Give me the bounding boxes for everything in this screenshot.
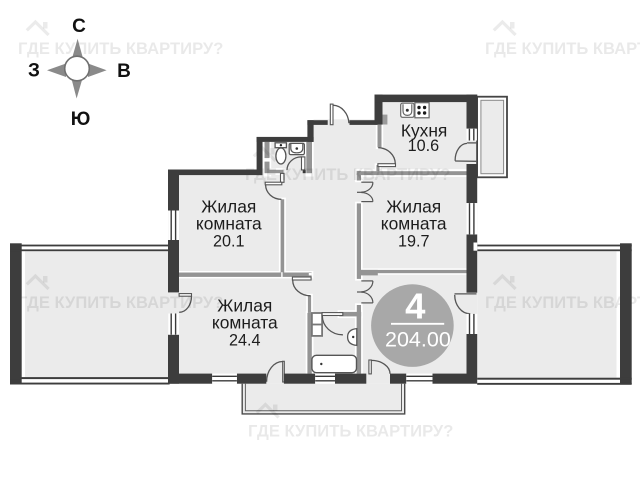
svg-text:ГДЕ КУПИТЬ КВАРТИРУ?: ГДЕ КУПИТЬ КВАРТИРУ? [485,39,640,58]
svg-text:ГДЕ КУПИТЬ КВАРТИРУ?: ГДЕ КУПИТЬ КВАРТИРУ? [485,293,640,312]
svg-text:ГДЕ КУПИТЬ КВАРТИРУ?: ГДЕ КУПИТЬ КВАРТИРУ? [248,422,453,441]
svg-text:204.00: 204.00 [385,327,451,351]
svg-text:Ю: Ю [71,109,91,130]
svg-text:10.6: 10.6 [408,137,440,155]
svg-text:комната: комната [212,312,278,332]
svg-text:24.4: 24.4 [229,331,261,349]
svg-text:4: 4 [405,286,426,327]
svg-text:комната: комната [196,213,262,233]
svg-text:ГДЕ КУПИТЬ КВАРТИРУ?: ГДЕ КУПИТЬ КВАРТИРУ? [18,39,223,58]
svg-text:ГДЕ КУПИТЬ КВАРТИРУ?: ГДЕ КУПИТЬ КВАРТИРУ? [18,293,223,312]
svg-text:20.1: 20.1 [213,233,245,251]
svg-text:З: З [28,61,40,82]
svg-text:комната: комната [381,213,447,233]
svg-text:В: В [117,61,131,82]
svg-text:ГДЕ КУПИТЬ КВАРТИРУ?: ГДЕ КУПИТЬ КВАРТИРУ? [245,165,450,184]
svg-text:19.7: 19.7 [398,232,430,250]
svg-text:С: С [72,16,86,37]
